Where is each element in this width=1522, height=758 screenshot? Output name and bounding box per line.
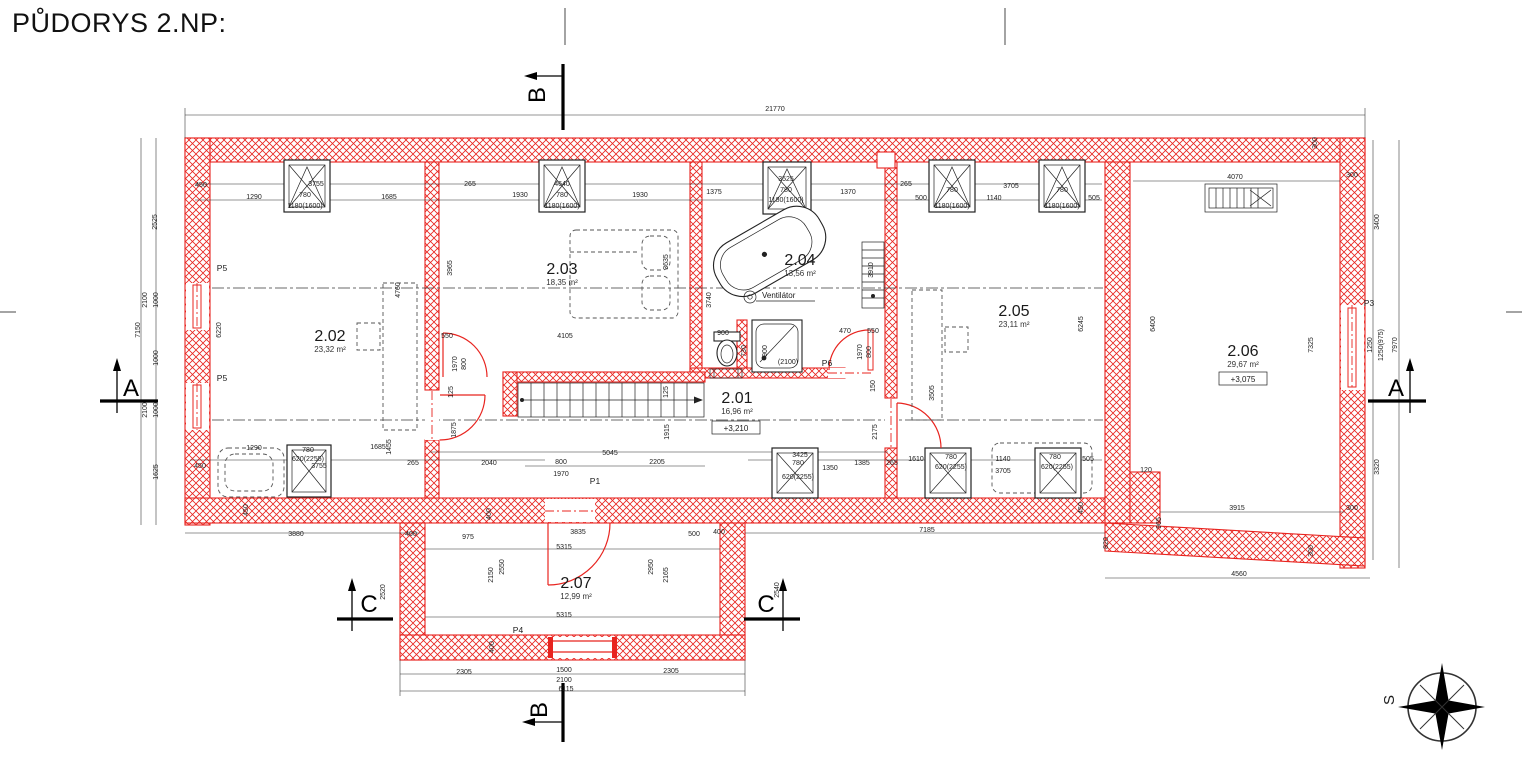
svg-text:18,35 m²: 18,35 m² xyxy=(546,278,578,287)
dimension-label: 1375 xyxy=(706,189,722,196)
toilet xyxy=(714,332,740,366)
svg-text:2.07: 2.07 xyxy=(560,575,591,592)
dimension-label: 3525 xyxy=(778,176,794,183)
dimension-label: 3880 xyxy=(288,531,304,538)
dimension-label: 2100 xyxy=(142,292,149,308)
dimension-label: 7970 xyxy=(1392,337,1399,353)
svg-text:2.01: 2.01 xyxy=(721,390,752,407)
dimension-label: 400 xyxy=(713,529,725,536)
dimension-label: 265 xyxy=(886,460,898,467)
dimension-label: 550 xyxy=(441,333,453,340)
dimension-label: 620(2255) xyxy=(935,464,967,471)
dimension-label: 3965 xyxy=(447,260,454,276)
dimension-label: 730 xyxy=(741,345,748,357)
dimension-label: 7325 xyxy=(1308,337,1315,353)
dimension-label: 125 xyxy=(448,386,455,398)
svg-text:+3,075: +3,075 xyxy=(1231,375,1256,384)
dimension-label: 3755 xyxy=(311,463,327,470)
dimension-label: 1180(1600) xyxy=(768,197,803,204)
dimension-label: 1180(1600) xyxy=(934,203,969,210)
dimension-label: 620(2255) xyxy=(782,474,814,481)
dimension-label: 1250(975) xyxy=(1378,329,1385,361)
dimension-label: 780 xyxy=(792,460,804,467)
room-label-203: 2.0318,35 m² xyxy=(546,261,578,287)
dimension-label: 1180(1600) xyxy=(544,203,579,210)
room-label-206: 2.0629,67 m²+3,075 xyxy=(1219,343,1267,385)
dimension-label: 1930 xyxy=(632,192,648,199)
svg-text:C: C xyxy=(360,591,377,618)
dimension-label: 1970 xyxy=(452,356,459,372)
dimension-label: 800 xyxy=(461,358,468,370)
svg-text:2.02: 2.02 xyxy=(314,328,345,345)
ventilator-label: Ventilátor xyxy=(762,291,796,300)
dimension-label: 965 xyxy=(1156,517,1163,529)
dimension-label: 470 xyxy=(839,328,851,335)
door-207-opening xyxy=(548,637,617,658)
dimension-label: 2520 xyxy=(380,584,387,600)
compass-icon: S xyxy=(1381,663,1485,750)
dimension-label: 2175 xyxy=(872,424,879,440)
section-marker-c-right: C xyxy=(744,578,800,631)
dimension-label: 1685 xyxy=(370,444,386,451)
dimension-label: 265 xyxy=(464,181,476,188)
dimension-label: 7185 xyxy=(919,527,935,534)
dimension-label: 5315 xyxy=(556,612,572,619)
door-label: P1 xyxy=(590,476,601,486)
svg-text:16,96 m²: 16,96 m² xyxy=(721,407,753,416)
room-label-207: 2.0712,99 m² xyxy=(560,575,592,601)
dimension-label: 3740 xyxy=(706,292,713,308)
door-label: P3 xyxy=(1364,298,1375,308)
compass-north-label: S xyxy=(1381,695,1398,705)
dimension-label: 4640 xyxy=(554,181,570,188)
dimension-label: 1455 xyxy=(386,439,393,455)
dimension-label: 2525 xyxy=(152,214,159,230)
furniture-202-bottom xyxy=(218,448,284,497)
dimension-label: 300 xyxy=(1312,137,1319,149)
dimension-label: 500 xyxy=(915,195,927,202)
dimension-label: 800 xyxy=(866,346,873,358)
svg-text:2.06: 2.06 xyxy=(1227,343,1258,360)
wardrobe-205 xyxy=(912,290,968,420)
dimension-label: 150 xyxy=(870,380,877,392)
floor-plan-page: PŮDORYS 2.NP: xyxy=(0,0,1522,758)
dimension-label: 2205 xyxy=(649,459,665,466)
dimension-label: 1970 xyxy=(857,344,864,360)
door-room205 xyxy=(885,399,941,448)
dimension-label: 975 xyxy=(462,534,474,541)
svg-text:B: B xyxy=(526,702,553,718)
dimension-label: 3705 xyxy=(1003,183,1019,190)
dimension-label: 1500 xyxy=(556,667,572,674)
dimension-label: 820 xyxy=(1103,537,1110,549)
dimension-label: 450 xyxy=(194,463,206,470)
dimension-label: 1625 xyxy=(153,464,160,480)
dimension-label: 1385 xyxy=(854,460,870,467)
dimension-label: 1140 xyxy=(995,456,1010,463)
dimension-label: 2040 xyxy=(481,460,497,467)
dimension-label: 3835 xyxy=(570,529,586,536)
svg-text:A: A xyxy=(1388,375,1404,402)
dimension-label: 780 xyxy=(302,447,314,454)
dimension-label: 1180(1600) xyxy=(1044,203,1079,210)
svg-text:29,67 m²: 29,67 m² xyxy=(1227,360,1259,369)
dimension-label: 21770 xyxy=(765,106,785,113)
dimension-label: 5315 xyxy=(556,544,572,551)
dimension-label: 450 xyxy=(243,504,250,516)
dimension-label: 1000 xyxy=(153,292,160,308)
dimension-label: 1370 xyxy=(840,189,856,196)
dimension-label: 2100 xyxy=(556,677,572,684)
ventilator-note: Ventilátor xyxy=(744,291,815,303)
dimension-label: 400 xyxy=(486,508,493,520)
dimension-label: 2950 xyxy=(648,559,655,575)
dimension-label: 6115 xyxy=(558,686,573,693)
dimension-label: 6220 xyxy=(216,322,223,338)
svg-text:23,11 m²: 23,11 m² xyxy=(999,320,1030,329)
dimension-label: (2100) xyxy=(778,359,798,366)
svg-text:+3,210: +3,210 xyxy=(724,424,749,433)
svg-text:13,56 m²: 13,56 m² xyxy=(784,269,816,278)
room-label-205: 2.0523,11 m² xyxy=(998,303,1029,329)
dimension-label: 1970 xyxy=(553,471,569,478)
dimension-label: 4070 xyxy=(1227,174,1243,181)
room-label-202: 2.0223,32 m² xyxy=(314,328,346,354)
dimension-label: 265 xyxy=(900,181,912,188)
dimension-label: 450 xyxy=(195,182,207,189)
dimension-label: 450 xyxy=(1078,502,1085,514)
dimension-label: 6245 xyxy=(1078,316,1085,332)
dimension-label: 1610 xyxy=(908,456,924,463)
dimension-label: 780 xyxy=(556,192,568,199)
dimension-label: 505 xyxy=(1088,195,1100,202)
door-p5-upper xyxy=(186,283,209,330)
dimension-label: 780 xyxy=(945,454,957,461)
dimension-label: 120 xyxy=(1140,467,1152,474)
room-label-201: 2.0116,96 m²+3,210 xyxy=(712,390,760,434)
dimension-label: 1290 xyxy=(246,445,262,452)
floor-plan-svg: Ventilátor 2.0116,96 m²+3,210 2.0223,32 … xyxy=(0,0,1522,758)
dimension-label: 300 xyxy=(1346,172,1358,179)
dimension-label: 3505 xyxy=(929,385,936,401)
door-label: P5 xyxy=(217,373,228,383)
dimension-label: 4560 xyxy=(1231,571,1247,578)
attic-ladder xyxy=(1205,184,1277,212)
dimension-label: 1140 xyxy=(986,195,1001,202)
dimension-label: 3755 xyxy=(308,181,324,188)
dimension-label: 1875 xyxy=(451,422,458,438)
dimension-label: 300 xyxy=(1346,505,1358,512)
wardrobe-202 xyxy=(357,283,417,430)
dimension-label: 900 xyxy=(717,330,729,337)
dimension-label: 500 xyxy=(688,531,700,538)
dimension-label: 780 xyxy=(299,192,311,199)
dimension-label: 780 xyxy=(946,187,958,194)
svg-text:12,99 m²: 12,99 m² xyxy=(560,592,592,601)
door-p3 xyxy=(1341,305,1364,390)
door-label: P4 xyxy=(513,625,524,635)
dimension-label: 300 xyxy=(1308,545,1315,557)
stairs xyxy=(518,383,704,417)
dimension-label: 800 xyxy=(555,459,567,466)
section-marker-b-top: B xyxy=(524,64,563,130)
dimension-label: 550 xyxy=(867,328,879,335)
dimension-label: 400 xyxy=(489,641,496,653)
dimension-label: 400 xyxy=(405,531,417,538)
dimension-label: 1000 xyxy=(153,402,160,418)
dimension-label: 1930 xyxy=(512,192,528,199)
svg-text:2.05: 2.05 xyxy=(998,303,1029,320)
section-marker-b-bottom: B xyxy=(522,683,563,742)
bed-203 xyxy=(570,230,678,318)
dimension-label: 1350 xyxy=(822,465,838,472)
dimension-label: 6400 xyxy=(1150,316,1157,332)
dimension-label: 2305 xyxy=(456,669,472,676)
door-label: P5 xyxy=(217,263,228,273)
svg-text:A: A xyxy=(123,375,139,402)
dimension-label: 7150 xyxy=(135,322,142,338)
svg-text:B: B xyxy=(524,87,551,103)
door-p5-lower xyxy=(186,383,209,430)
dimension-label: 1250 xyxy=(1367,337,1374,353)
dimension-label: 1000 xyxy=(153,350,160,366)
svg-text:C: C xyxy=(757,591,774,618)
dimension-label: 2165 xyxy=(663,567,670,583)
dimension-label: 620(2255) xyxy=(1041,464,1073,471)
dimension-label: 2100 xyxy=(142,402,149,418)
section-marker-a-left: A xyxy=(100,358,158,413)
dimension-label: 3915 xyxy=(1229,505,1245,512)
dimension-label: 3705 xyxy=(995,468,1011,475)
dimension-label: 2150 xyxy=(488,567,495,583)
svg-text:2.04: 2.04 xyxy=(784,252,815,269)
dimension-label: 1915 xyxy=(664,424,671,440)
dimension-label: 1180(1600) xyxy=(287,203,322,210)
dimension-label: 3425 xyxy=(792,452,808,459)
dimension-label: 2305 xyxy=(663,668,679,675)
dimension-label: 125 xyxy=(663,386,670,398)
dimension-label: 4105 xyxy=(557,333,573,340)
dimension-label: 780 xyxy=(1056,187,1068,194)
dimension-label: 1685 xyxy=(381,194,397,201)
dimension-label: 505 xyxy=(1082,456,1094,463)
svg-text:2.03: 2.03 xyxy=(546,261,577,278)
dimension-label: 1290 xyxy=(246,194,262,201)
dimension-label: 620(2255) xyxy=(292,456,324,463)
dimension-label: 900 xyxy=(762,345,769,357)
dimension-label: 3320 xyxy=(1374,459,1381,475)
dimension-label: 5045 xyxy=(602,450,618,457)
stairs-direction-arrow xyxy=(694,397,703,404)
dimension-label: 265 xyxy=(407,460,419,467)
roof-windows xyxy=(284,160,1092,498)
door-label: P6 xyxy=(822,358,833,368)
dimension-label: 2550 xyxy=(499,559,506,575)
dimension-label: 3400 xyxy=(1374,214,1381,230)
dimension-label: 3635 xyxy=(663,254,670,270)
dimension-label: 780 xyxy=(780,187,792,194)
dimension-label: 4760 xyxy=(395,282,402,298)
dimension-label: 3910 xyxy=(868,262,875,278)
room-label-204: 2.0413,56 m² xyxy=(784,252,816,278)
dimension-label: 2540 xyxy=(774,582,781,598)
section-marker-a-right: A xyxy=(1368,358,1426,413)
svg-text:23,32 m²: 23,32 m² xyxy=(314,345,346,354)
dimension-label: 780 xyxy=(1049,454,1061,461)
